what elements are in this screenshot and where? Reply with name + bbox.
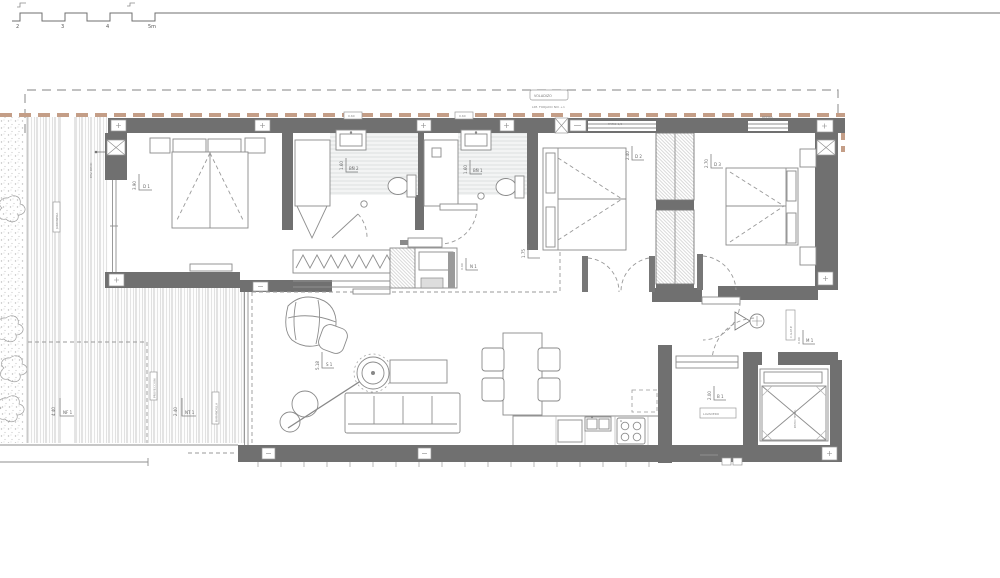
scale-bar: 2 3 4 5m: [12, 3, 1000, 30]
master-bed-icon: [150, 138, 265, 228]
svg-text:5.18: 5.18: [315, 361, 320, 370]
svg-text:1.60: 1.60: [463, 165, 468, 174]
bedroom-2: 2.40 D 2: [543, 146, 655, 292]
drain-icon-2: [478, 193, 484, 199]
chair-icon: [482, 378, 504, 401]
svg-text:N 1: N 1: [470, 264, 477, 269]
dining-area: [482, 333, 560, 415]
svg-text:2.00: 2.00: [707, 391, 712, 400]
hall-fixture: [400, 238, 442, 247]
bifold-door: [297, 206, 327, 238]
svg-text:S 1: S 1: [326, 362, 333, 367]
scale-tick-4: 4: [106, 24, 109, 30]
dim-bed2: 2.40 D 2: [625, 146, 644, 160]
svg-text:PROYECCION: PROYECCION: [153, 379, 157, 399]
planting-strip: [0, 117, 24, 443]
svg-text:0.60: 0.60: [459, 114, 466, 118]
sink-icon-1: [336, 130, 366, 150]
window-bed3: [748, 121, 788, 131]
svg-text:LAVADERO: LAVADERO: [703, 412, 720, 416]
svg-text:0.60: 0.60: [348, 114, 355, 118]
panel-tag: C.G.M.P.: [786, 310, 795, 340]
bathroom-1: 1.60 BÑ 2: [295, 130, 418, 238]
scale-tick-5m: 5m: [148, 24, 156, 30]
svg-text:1.75: 1.75: [521, 249, 526, 258]
svg-text:M 1: M 1: [806, 338, 814, 343]
wall-cabinet-dashed: [632, 390, 657, 412]
chair-icon: [482, 348, 504, 371]
scale-tick-2: 2: [16, 24, 19, 30]
bed2-door-leaf: [582, 256, 588, 292]
svg-text:2.40: 2.40: [625, 151, 630, 160]
svg-text:2.40: 2.40: [173, 407, 178, 416]
nightstand-icon: [800, 149, 816, 167]
svg-text:0.90: 0.90: [460, 263, 464, 270]
bottom-exterior-wall: [238, 445, 840, 462]
floor-plan-drawing: 2 3 4 5m JARDINERA: [0, 0, 1000, 578]
svg-text:BÑ 1: BÑ 1: [473, 168, 483, 173]
dishwasher-icon: [558, 420, 582, 442]
bath2-door-leaf: [440, 204, 477, 210]
svg-text:PAV. DECK: PAV. DECK: [89, 162, 93, 178]
svg-text:B 1: B 1: [717, 394, 724, 399]
bed2-icon: [543, 148, 626, 250]
dim-living: 5.18 S 1: [315, 352, 334, 370]
hall-cabinet: [415, 248, 457, 288]
svg-text:C.G.M.P.: C.G.M.P.: [789, 326, 793, 338]
svg-text:REPISA: REPISA: [762, 115, 774, 119]
svg-text:D 3: D 3: [714, 162, 721, 167]
sofa-icon: [345, 393, 460, 433]
terrace-deck-lower: [108, 288, 247, 443]
chair-icon: [538, 378, 560, 401]
svg-text:VOLADIZO: VOLADIZO: [534, 94, 552, 98]
bed3-door-leaf: [697, 254, 703, 290]
floor-plan-sheet: 2 3 4 5m JARDINERA: [0, 0, 1000, 578]
bath1-door-leaf: [332, 214, 358, 238]
svg-text:1.60: 1.60: [339, 161, 344, 170]
svg-text:D 1: D 1: [143, 184, 150, 189]
cooktop-icon: [617, 418, 645, 444]
bench-icon: [190, 264, 232, 271]
master-south-wall: [105, 272, 240, 288]
bathroom-2: 1.60 BÑ 1: [424, 130, 527, 244]
hall-closet: [390, 248, 415, 288]
bed3-icon: [726, 168, 798, 245]
bedroom-3: 2.70 D 3: [697, 149, 816, 290]
chair-icon: [538, 348, 560, 371]
coffee-table-icon: [390, 360, 447, 383]
svg-text:NT 1: NT 1: [185, 410, 195, 415]
scale-tick-3: 3: [61, 24, 64, 30]
svg-text:JARDINERA: JARDINERA: [55, 212, 59, 230]
dim-entry: 0.90 M 1: [797, 330, 815, 344]
sink-icon-2: [461, 130, 491, 150]
svg-text:BÑ 2: BÑ 2: [349, 166, 359, 171]
living-room: 5.18 S 1: [245, 289, 461, 445]
dining-table-icon: [503, 333, 542, 415]
right-exterior-wall: [815, 133, 838, 290]
laundry-room: LAVADERO 2.00 B 1: [676, 356, 738, 418]
svg-text:NF 1: NF 1: [63, 410, 73, 415]
dim-laundry: 2.00 B 1: [707, 386, 726, 400]
master-bedroom: 3.90 D 1: [110, 138, 265, 272]
terrace-label-jardinera: JARDINERA: [53, 202, 60, 232]
dim-master: 3.90 D 1: [132, 174, 152, 190]
svg-text:PATIO 1/3: PATIO 1/3: [608, 122, 622, 126]
entry-door: [702, 297, 740, 340]
patio-shaft: PATIO TEND.: [760, 369, 828, 441]
svg-text:D 2: D 2: [635, 154, 642, 159]
svg-text:2.70: 2.70: [704, 159, 709, 168]
svg-text:4.40: 4.40: [51, 407, 56, 416]
nightstand-icon-b: [800, 247, 816, 265]
svg-text:3.90: 3.90: [132, 181, 137, 190]
drain-icon-1: [361, 201, 367, 207]
svg-text:0.90: 0.90: [797, 337, 801, 344]
bed2-door-leaf-b: [649, 256, 655, 292]
terrace-label-proyeccion: PROYECCION: [150, 372, 157, 400]
terrace-deck-left: [27, 117, 60, 443]
svg-text:LIM. FORJADO NIV. +1: LIM. FORJADO NIV. +1: [532, 105, 565, 109]
svg-text:BARANDILLA: BARANDILLA: [215, 402, 219, 422]
svg-text:PATIO TEND.: PATIO TEND.: [793, 409, 797, 428]
terrace-label-barandilla: BARANDILLA: [212, 392, 219, 424]
dim-bed3: 2.70 D 3: [704, 154, 723, 168]
dim-hall2: N 1 0.90: [460, 258, 478, 270]
kitchen-sink-icon: [585, 416, 611, 431]
